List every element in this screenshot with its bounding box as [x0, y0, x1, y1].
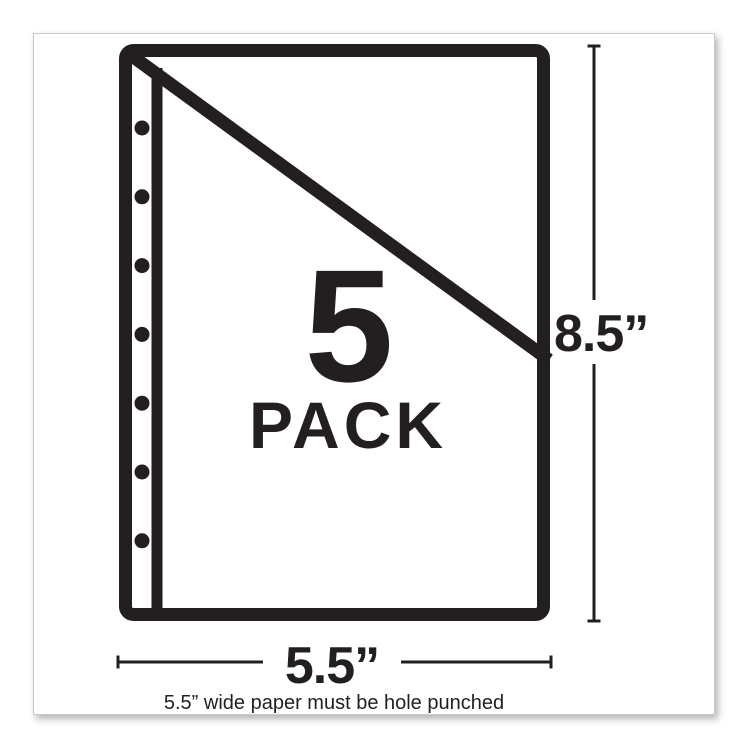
diagram-text-overlay: 5 PACK 8.5” 5.5” 5.5” wide paper must be…: [34, 34, 716, 716]
pack-label: PACK: [158, 392, 538, 458]
product-illustration-card: 5 PACK 8.5” 5.5” 5.5” wide paper must be…: [33, 33, 715, 715]
pack-quantity: 5: [158, 246, 538, 406]
height-dimension-label: 8.5”: [554, 308, 648, 360]
product-image-page: 5 PACK 8.5” 5.5” 5.5” wide paper must be…: [0, 0, 750, 750]
hole-punch-caption: 5.5” wide paper must be hole punched: [43, 692, 625, 714]
width-dimension-label: 5.5”: [263, 640, 401, 692]
